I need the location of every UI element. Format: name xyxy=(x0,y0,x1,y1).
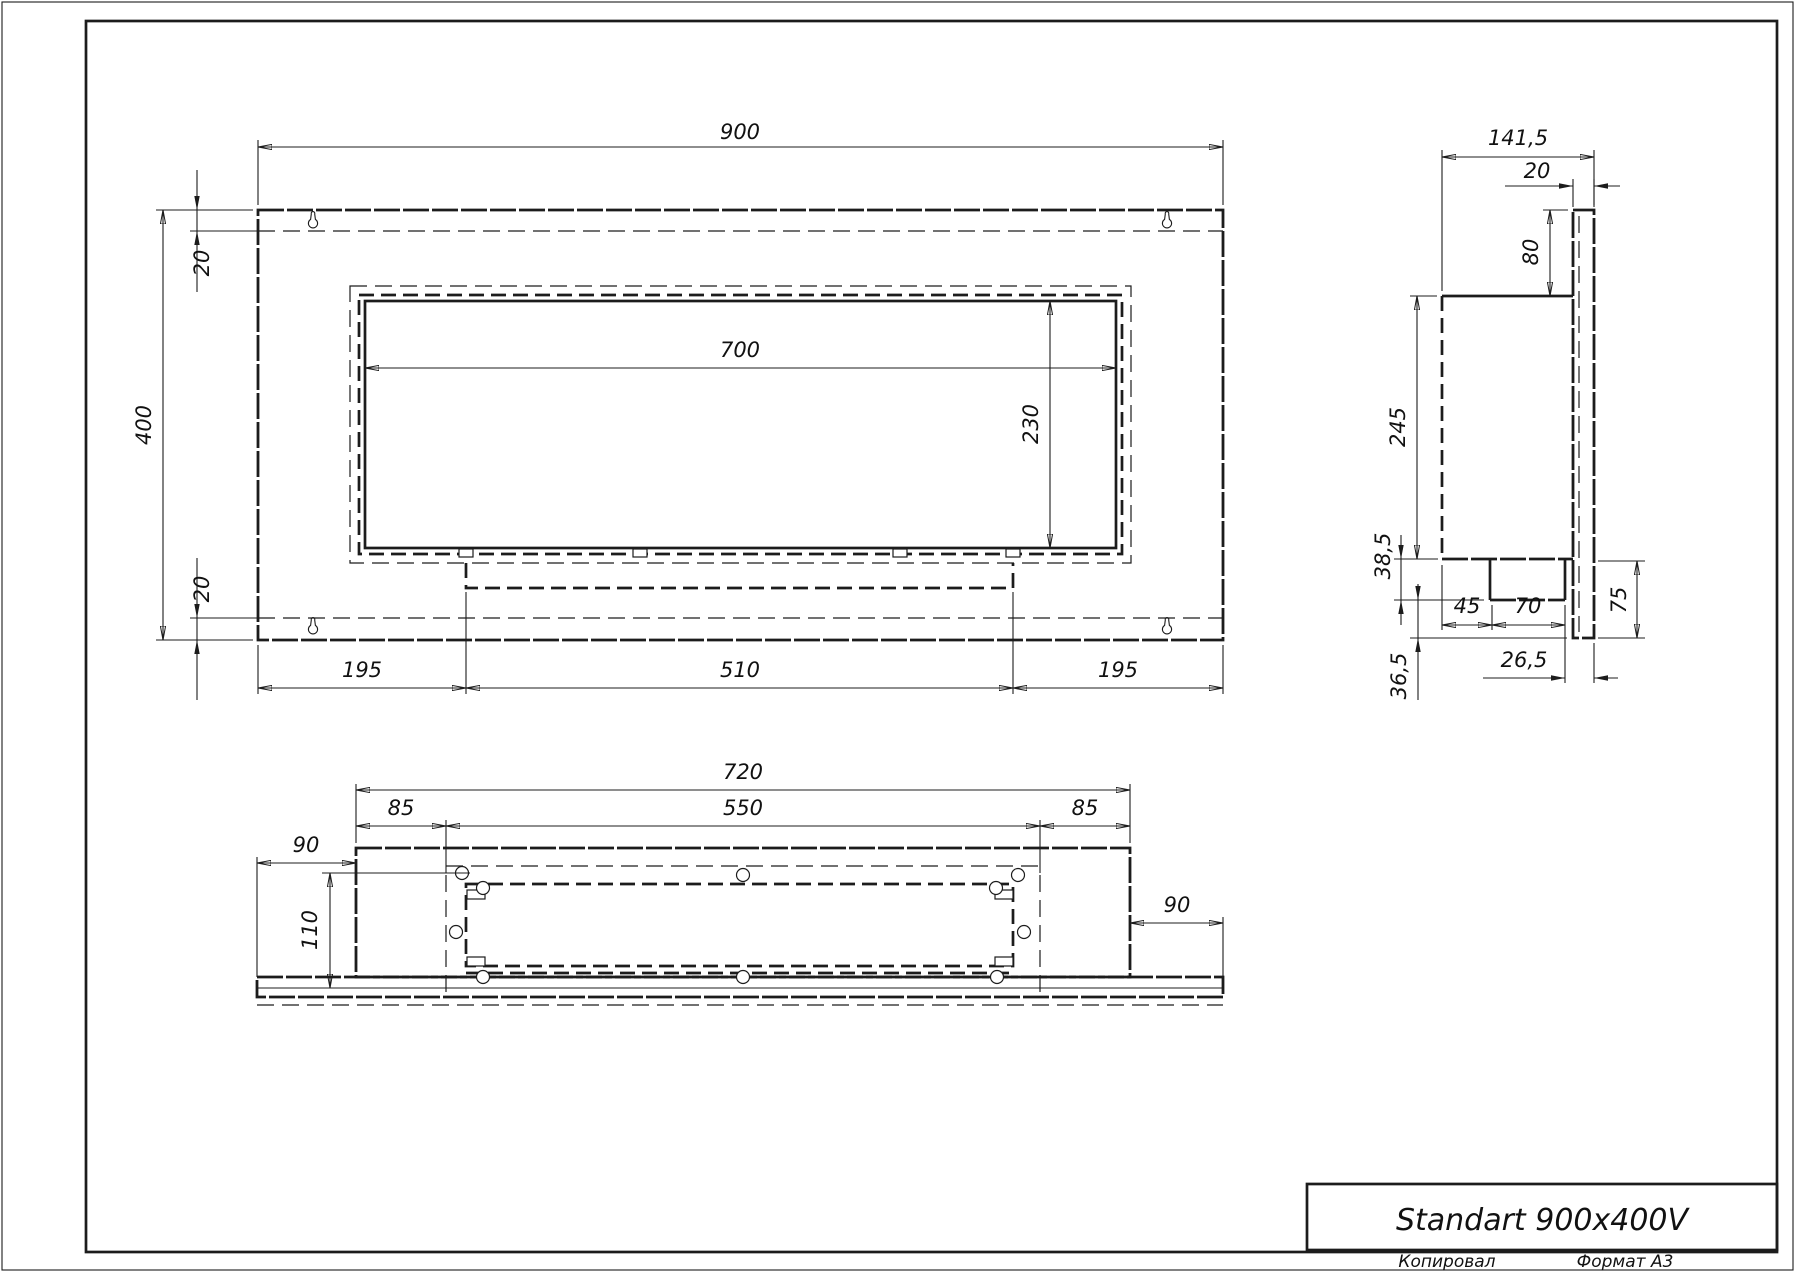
face-panel-outline xyxy=(1573,210,1594,638)
technical-drawing: 900 400 20 20 700 230 195 510 19 xyxy=(0,0,1800,1273)
mount-hole xyxy=(450,926,463,939)
keyhole-mount-icon xyxy=(1162,212,1171,228)
tray-clip xyxy=(1006,549,1020,557)
mount-hole xyxy=(477,882,490,895)
hidden-fuel-tray xyxy=(466,563,1013,588)
dim-overhang-left: 90 xyxy=(293,833,320,857)
mount-hole xyxy=(1018,926,1031,939)
tray-clip xyxy=(893,549,907,557)
hidden-opening-outer xyxy=(350,286,1131,563)
dim-tray-gap: 26,5 xyxy=(1501,648,1548,672)
dim-overhang-right: 90 xyxy=(1164,893,1191,917)
side-view: 141,5 20 80 245 38,5 36,5 xyxy=(1371,126,1645,700)
dim-tray-width: 70 xyxy=(1515,594,1542,618)
tray-clip xyxy=(633,549,647,557)
mount-hole xyxy=(1012,869,1025,882)
dim-panel-depth: 20 xyxy=(1524,159,1551,183)
dim-bottom-gap: 36,5 xyxy=(1387,653,1411,700)
dim-overall-width: 900 xyxy=(720,120,760,144)
dim-opening-height: 230 xyxy=(1019,404,1043,444)
mount-hole xyxy=(477,971,490,984)
dim-top-margin: 20 xyxy=(190,250,214,277)
dim-body-height: 245 xyxy=(1386,407,1410,447)
dim-opening-width: 700 xyxy=(720,338,760,362)
dim-inset-right: 85 xyxy=(1072,796,1099,820)
hidden-opening-frame xyxy=(359,295,1122,554)
page-border xyxy=(2,2,1793,1270)
dim-bottom-margin: 20 xyxy=(190,576,214,603)
dim-tray-offset: 45 xyxy=(1454,594,1481,618)
front-view: 900 400 20 20 700 230 195 510 19 xyxy=(132,120,1223,700)
drawing-sheet: 900 400 20 20 700 230 195 510 19 xyxy=(0,0,1800,1273)
tray-clip xyxy=(995,957,1013,966)
dim-top-drop: 80 xyxy=(1519,239,1543,266)
keyhole-mount-icon xyxy=(308,618,317,634)
keyhole-mount-icon xyxy=(1162,618,1171,634)
hidden-fuel-tray xyxy=(466,884,1013,966)
tray-clip xyxy=(467,957,485,966)
dim-bottom-center: 510 xyxy=(720,658,760,682)
dim-overall-height: 400 xyxy=(132,405,156,445)
mount-hole xyxy=(990,882,1003,895)
dim-body-depth: 110 xyxy=(298,910,322,950)
drawing-frame xyxy=(86,21,1777,1252)
dim-tray-drop: 38,5 xyxy=(1371,533,1395,580)
dim-bottom-right: 195 xyxy=(1098,658,1138,682)
mount-hole xyxy=(737,971,750,984)
format-label: Формат А3 xyxy=(1577,1252,1674,1272)
mount-hole xyxy=(737,869,750,882)
product-title: Standart 900x400V xyxy=(1396,1203,1691,1238)
title-block: Standart 900x400V Копировал Формат А3 xyxy=(1307,1184,1777,1272)
dim-overall-depth: 141,5 xyxy=(1488,126,1548,150)
dim-inset-left: 85 xyxy=(388,796,415,820)
copied-label: Копировал xyxy=(1398,1252,1495,1272)
keyhole-mount-icon xyxy=(308,212,317,228)
dim-body-width: 720 xyxy=(723,760,763,784)
dim-opening-width: 550 xyxy=(723,796,763,820)
dim-panel-lower: 75 xyxy=(1607,587,1631,614)
tray-clip xyxy=(459,549,473,557)
mount-hole xyxy=(991,971,1004,984)
dim-bottom-left: 195 xyxy=(342,658,382,682)
bottom-view: 720 85 550 85 90 110 90 xyxy=(257,760,1223,1005)
front-outline xyxy=(258,210,1223,640)
